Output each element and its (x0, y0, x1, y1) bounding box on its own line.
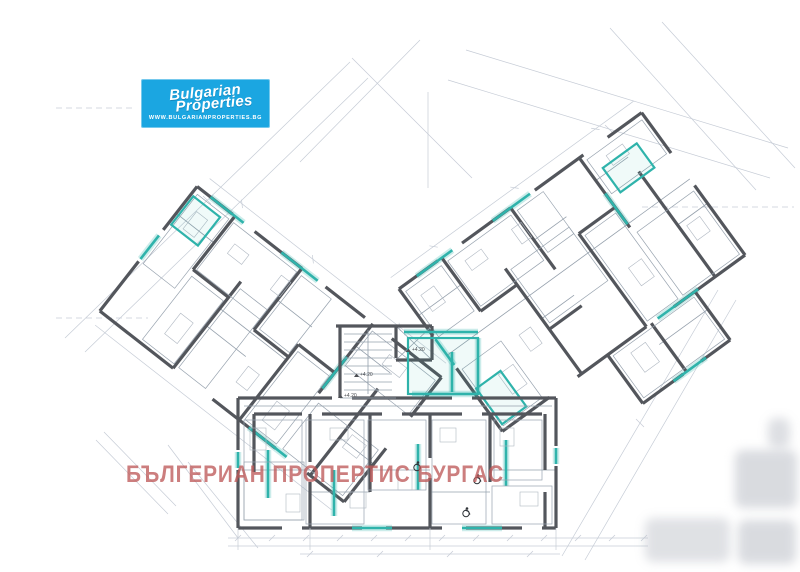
watermark-text: БЪЛГЕРИАН ПРОПЕРТИС БУРГАС (126, 461, 504, 489)
svg-text:+4.20: +4.20 (412, 347, 425, 353)
logo-url-text: WWW.BULGARIANPROPERTIES.BG (149, 115, 262, 121)
svg-text:+4.20: +4.20 (344, 393, 357, 399)
right-wing (389, 99, 780, 480)
stair-core (336, 326, 478, 398)
svg-text:+4.20: +4.20 (360, 372, 373, 378)
logo-wordmark: Bulgarian Properties (158, 82, 253, 115)
dimension-chains (228, 528, 648, 557)
wheelchair-icon (463, 507, 470, 517)
bulgarian-properties-logo: Bulgarian Properties WWW.BULGARIANPROPER… (141, 79, 270, 128)
elevation-mark: +4.20 (354, 372, 373, 378)
logo-wordmark-line2: Properties (175, 94, 253, 114)
floor-plan-page: +4.20+4.20+4.20 Bulgarian Properties WWW… (0, 0, 800, 572)
